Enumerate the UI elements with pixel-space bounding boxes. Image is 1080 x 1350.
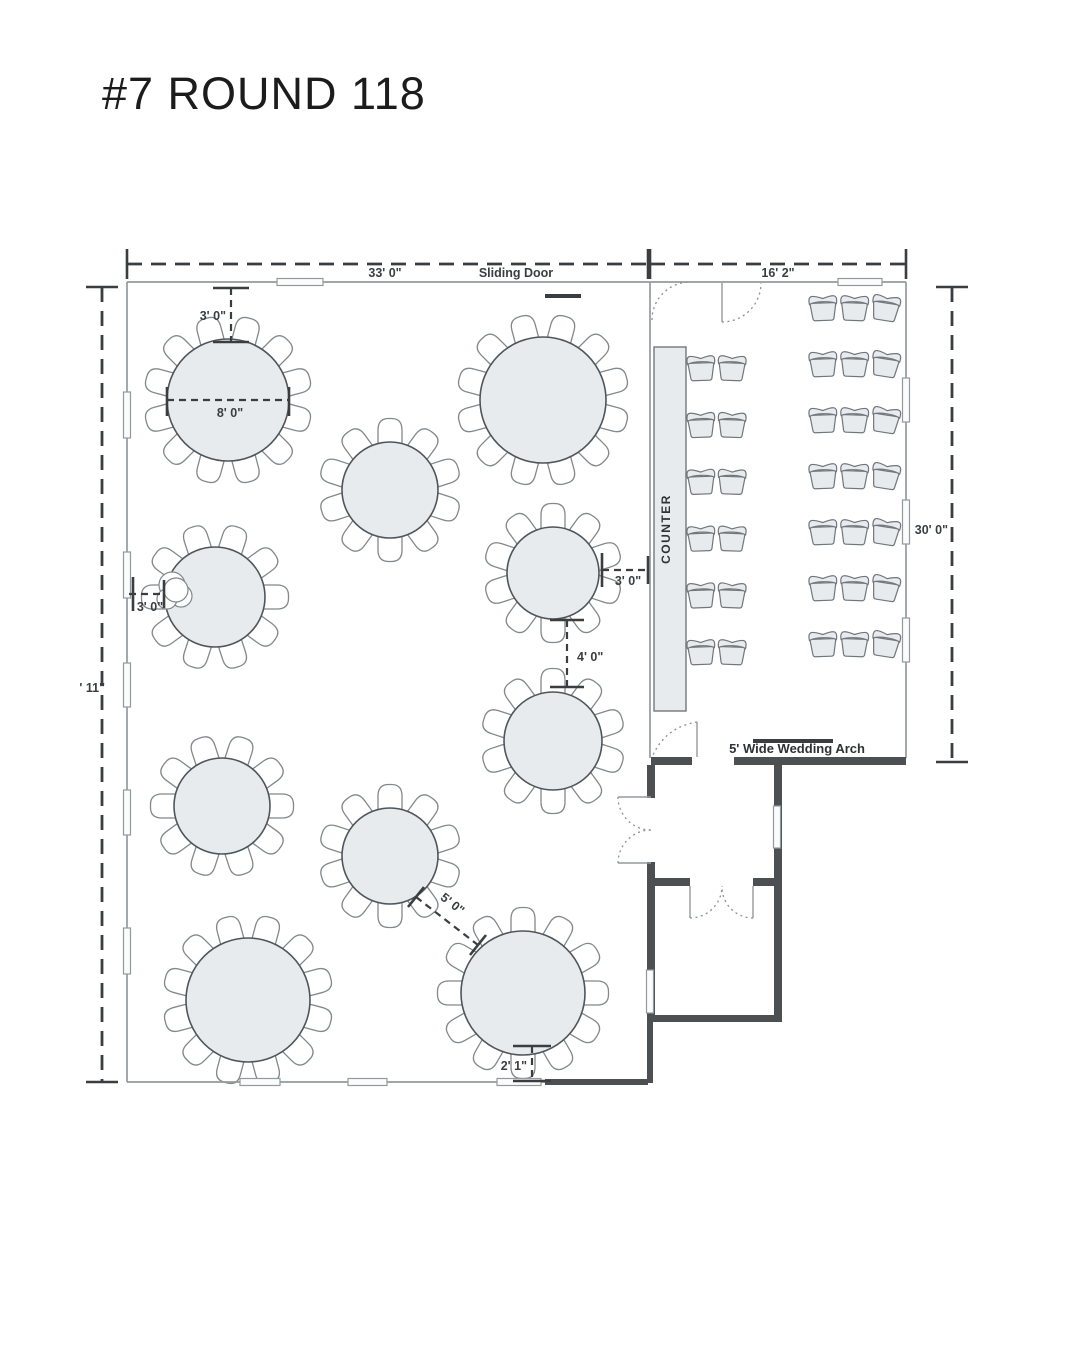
ceremony-chair [809, 520, 838, 545]
door-bar [545, 294, 581, 298]
window [838, 279, 882, 286]
counter-label: COUNTER [659, 494, 673, 564]
floorplan-drawing: COUNTER33' 0"Sliding Door16' 2"30' 0"' 1… [0, 0, 1080, 1350]
door-swing-arc [618, 830, 651, 863]
ceremony-chair [687, 469, 716, 494]
door-swing-arc [618, 797, 651, 830]
chair-cluster [164, 578, 188, 602]
ceremony-chair [870, 294, 901, 323]
round-table-group [318, 785, 461, 928]
ceremony-chair [809, 352, 838, 377]
wall-thick [647, 1015, 782, 1022]
ceremony-chair [840, 296, 869, 321]
door-swing-arc [652, 282, 690, 320]
dimension-label: 3' 0" [200, 309, 226, 323]
door-swing-arc [653, 722, 697, 755]
wall-thick [647, 878, 690, 886]
dimension-label: 30' 0" [915, 523, 948, 537]
round-table [480, 337, 606, 463]
round-table [186, 938, 310, 1062]
ceremony-chair [687, 412, 716, 437]
dimension-label: 33' 0" [368, 266, 401, 280]
ceremony-chair [718, 469, 747, 494]
window [903, 618, 910, 662]
wall-thick [734, 757, 906, 765]
round-table [504, 692, 602, 790]
ceremony-chair [809, 296, 838, 321]
dimension-label: 16' 2" [761, 266, 794, 280]
round-table [461, 931, 585, 1055]
window [348, 1079, 387, 1086]
ceremony-chair [840, 632, 869, 657]
door-swing-arc [722, 283, 761, 322]
window [903, 500, 910, 544]
window [774, 806, 781, 848]
wall-thick [647, 765, 655, 798]
dimension-label: 5' 0" [438, 890, 467, 917]
ceremony-chair [840, 576, 869, 601]
wall-thick [651, 757, 692, 765]
window [277, 279, 323, 286]
ceremony-chair [809, 576, 838, 601]
dimension-label: 8' 0" [217, 406, 243, 420]
wall-thick [545, 1079, 648, 1085]
ceremony-chair [870, 574, 901, 603]
round-table-group [438, 908, 609, 1079]
window [647, 970, 654, 1013]
round-table-group [318, 419, 461, 562]
ceremony-chair [718, 583, 747, 608]
window [240, 1079, 280, 1086]
window [124, 663, 131, 707]
window [124, 928, 131, 974]
ceremony-chair [870, 406, 901, 435]
wall-thick [647, 1022, 653, 1083]
ceremony-chair [687, 640, 716, 665]
ceremony-chair [840, 464, 869, 489]
round-table-group [456, 313, 629, 486]
round-table [342, 442, 438, 538]
dimension-label: 3' 0" [137, 600, 163, 614]
ceremony-chair [809, 464, 838, 489]
ceremony-chair [870, 462, 901, 491]
round-table [507, 527, 599, 619]
ceremony-chair [840, 408, 869, 433]
window [903, 378, 910, 422]
floorplan-page: #7 ROUND 118 COUNTER33' 0"Sliding Door16… [0, 0, 1080, 1350]
door-swing-arc [722, 886, 753, 918]
dimension-label: 4' 0" [577, 650, 603, 664]
round-table-group [480, 669, 625, 814]
dimension-label: 3' 0" [615, 574, 641, 588]
dimension-label: Sliding Door [479, 266, 553, 280]
window [124, 790, 131, 835]
ceremony-chair [809, 408, 838, 433]
ceremony-chair [718, 356, 747, 381]
round-table [342, 808, 438, 904]
ceremony-chair [840, 520, 869, 545]
ceremony-chair [870, 350, 901, 379]
ceremony-chair [687, 583, 716, 608]
ceremony-chair [870, 518, 901, 547]
dimension-label: 2' 1" [501, 1059, 527, 1073]
ceremony-chair [687, 526, 716, 551]
wall-thick [753, 878, 782, 886]
ceremony-chair [718, 640, 747, 665]
ceremony-chair [687, 356, 716, 381]
round-table-group [151, 734, 294, 877]
window [124, 552, 131, 598]
ceremony-chair [718, 412, 747, 437]
window [124, 392, 131, 438]
ceremony-chair [809, 632, 838, 657]
round-table-group [162, 914, 333, 1085]
door-swing-arc [690, 886, 722, 918]
round-table [174, 758, 270, 854]
wall-thick [774, 886, 782, 1022]
ceremony-chair [840, 352, 869, 377]
ceremony-chair [718, 526, 747, 551]
wedding-arch-label: 5' Wide Wedding Arch [729, 741, 865, 756]
ceremony-chair [870, 630, 901, 659]
dimension-label: ' 11" [79, 681, 105, 695]
